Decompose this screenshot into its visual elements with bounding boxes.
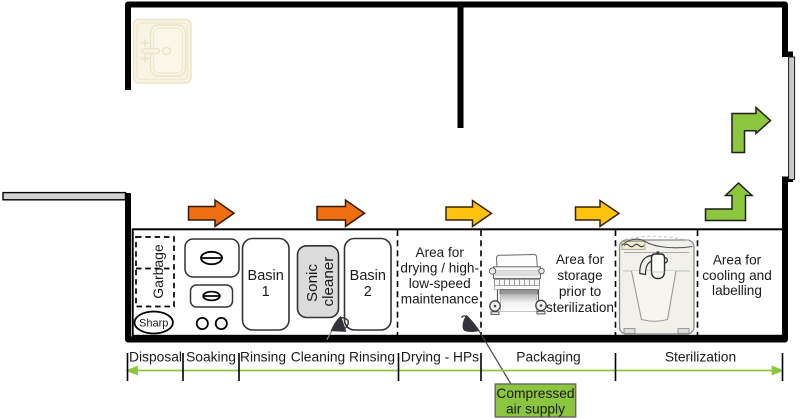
svg-text:Sonic: Sonic	[304, 264, 321, 302]
svg-text:Sharp: Sharp	[139, 318, 168, 330]
svg-text:1: 1	[262, 284, 270, 300]
svg-text:labelling: labelling	[712, 283, 762, 298]
svg-text:Area for: Area for	[556, 252, 605, 267]
svg-text:Drying - HPs: Drying - HPs	[401, 350, 479, 365]
svg-text:Disposal: Disposal	[129, 350, 182, 365]
svg-text:cleaner: cleaner	[320, 257, 337, 307]
svg-text:storage: storage	[557, 268, 602, 283]
svg-text:Packaging: Packaging	[516, 350, 580, 365]
svg-text:Basin: Basin	[350, 268, 386, 284]
svg-text:cooling and: cooling and	[702, 268, 772, 283]
svg-text:Basin: Basin	[248, 268, 284, 284]
svg-text:2: 2	[364, 284, 372, 300]
svg-text:maintenance: maintenance	[401, 292, 479, 307]
svg-text:Soaking: Soaking	[186, 350, 236, 365]
svg-text:air supply: air supply	[506, 402, 565, 417]
svg-text:Compressed: Compressed	[496, 386, 574, 401]
svg-text:Cleaning: Cleaning	[291, 350, 345, 365]
svg-text:Area for: Area for	[416, 245, 465, 260]
svg-text:Garbage: Garbage	[150, 244, 166, 299]
svg-text:sterilization: sterilization	[546, 300, 614, 315]
svg-text:Rinsing: Rinsing	[240, 350, 286, 365]
svg-text:low-speed: low-speed	[409, 276, 471, 291]
svg-text:prior to: prior to	[559, 284, 601, 299]
svg-text:Rinsing: Rinsing	[349, 350, 395, 365]
svg-text:Area for: Area for	[713, 253, 762, 268]
svg-text:drying / high-: drying / high-	[400, 261, 479, 276]
svg-text:Sterilization: Sterilization	[665, 350, 736, 365]
